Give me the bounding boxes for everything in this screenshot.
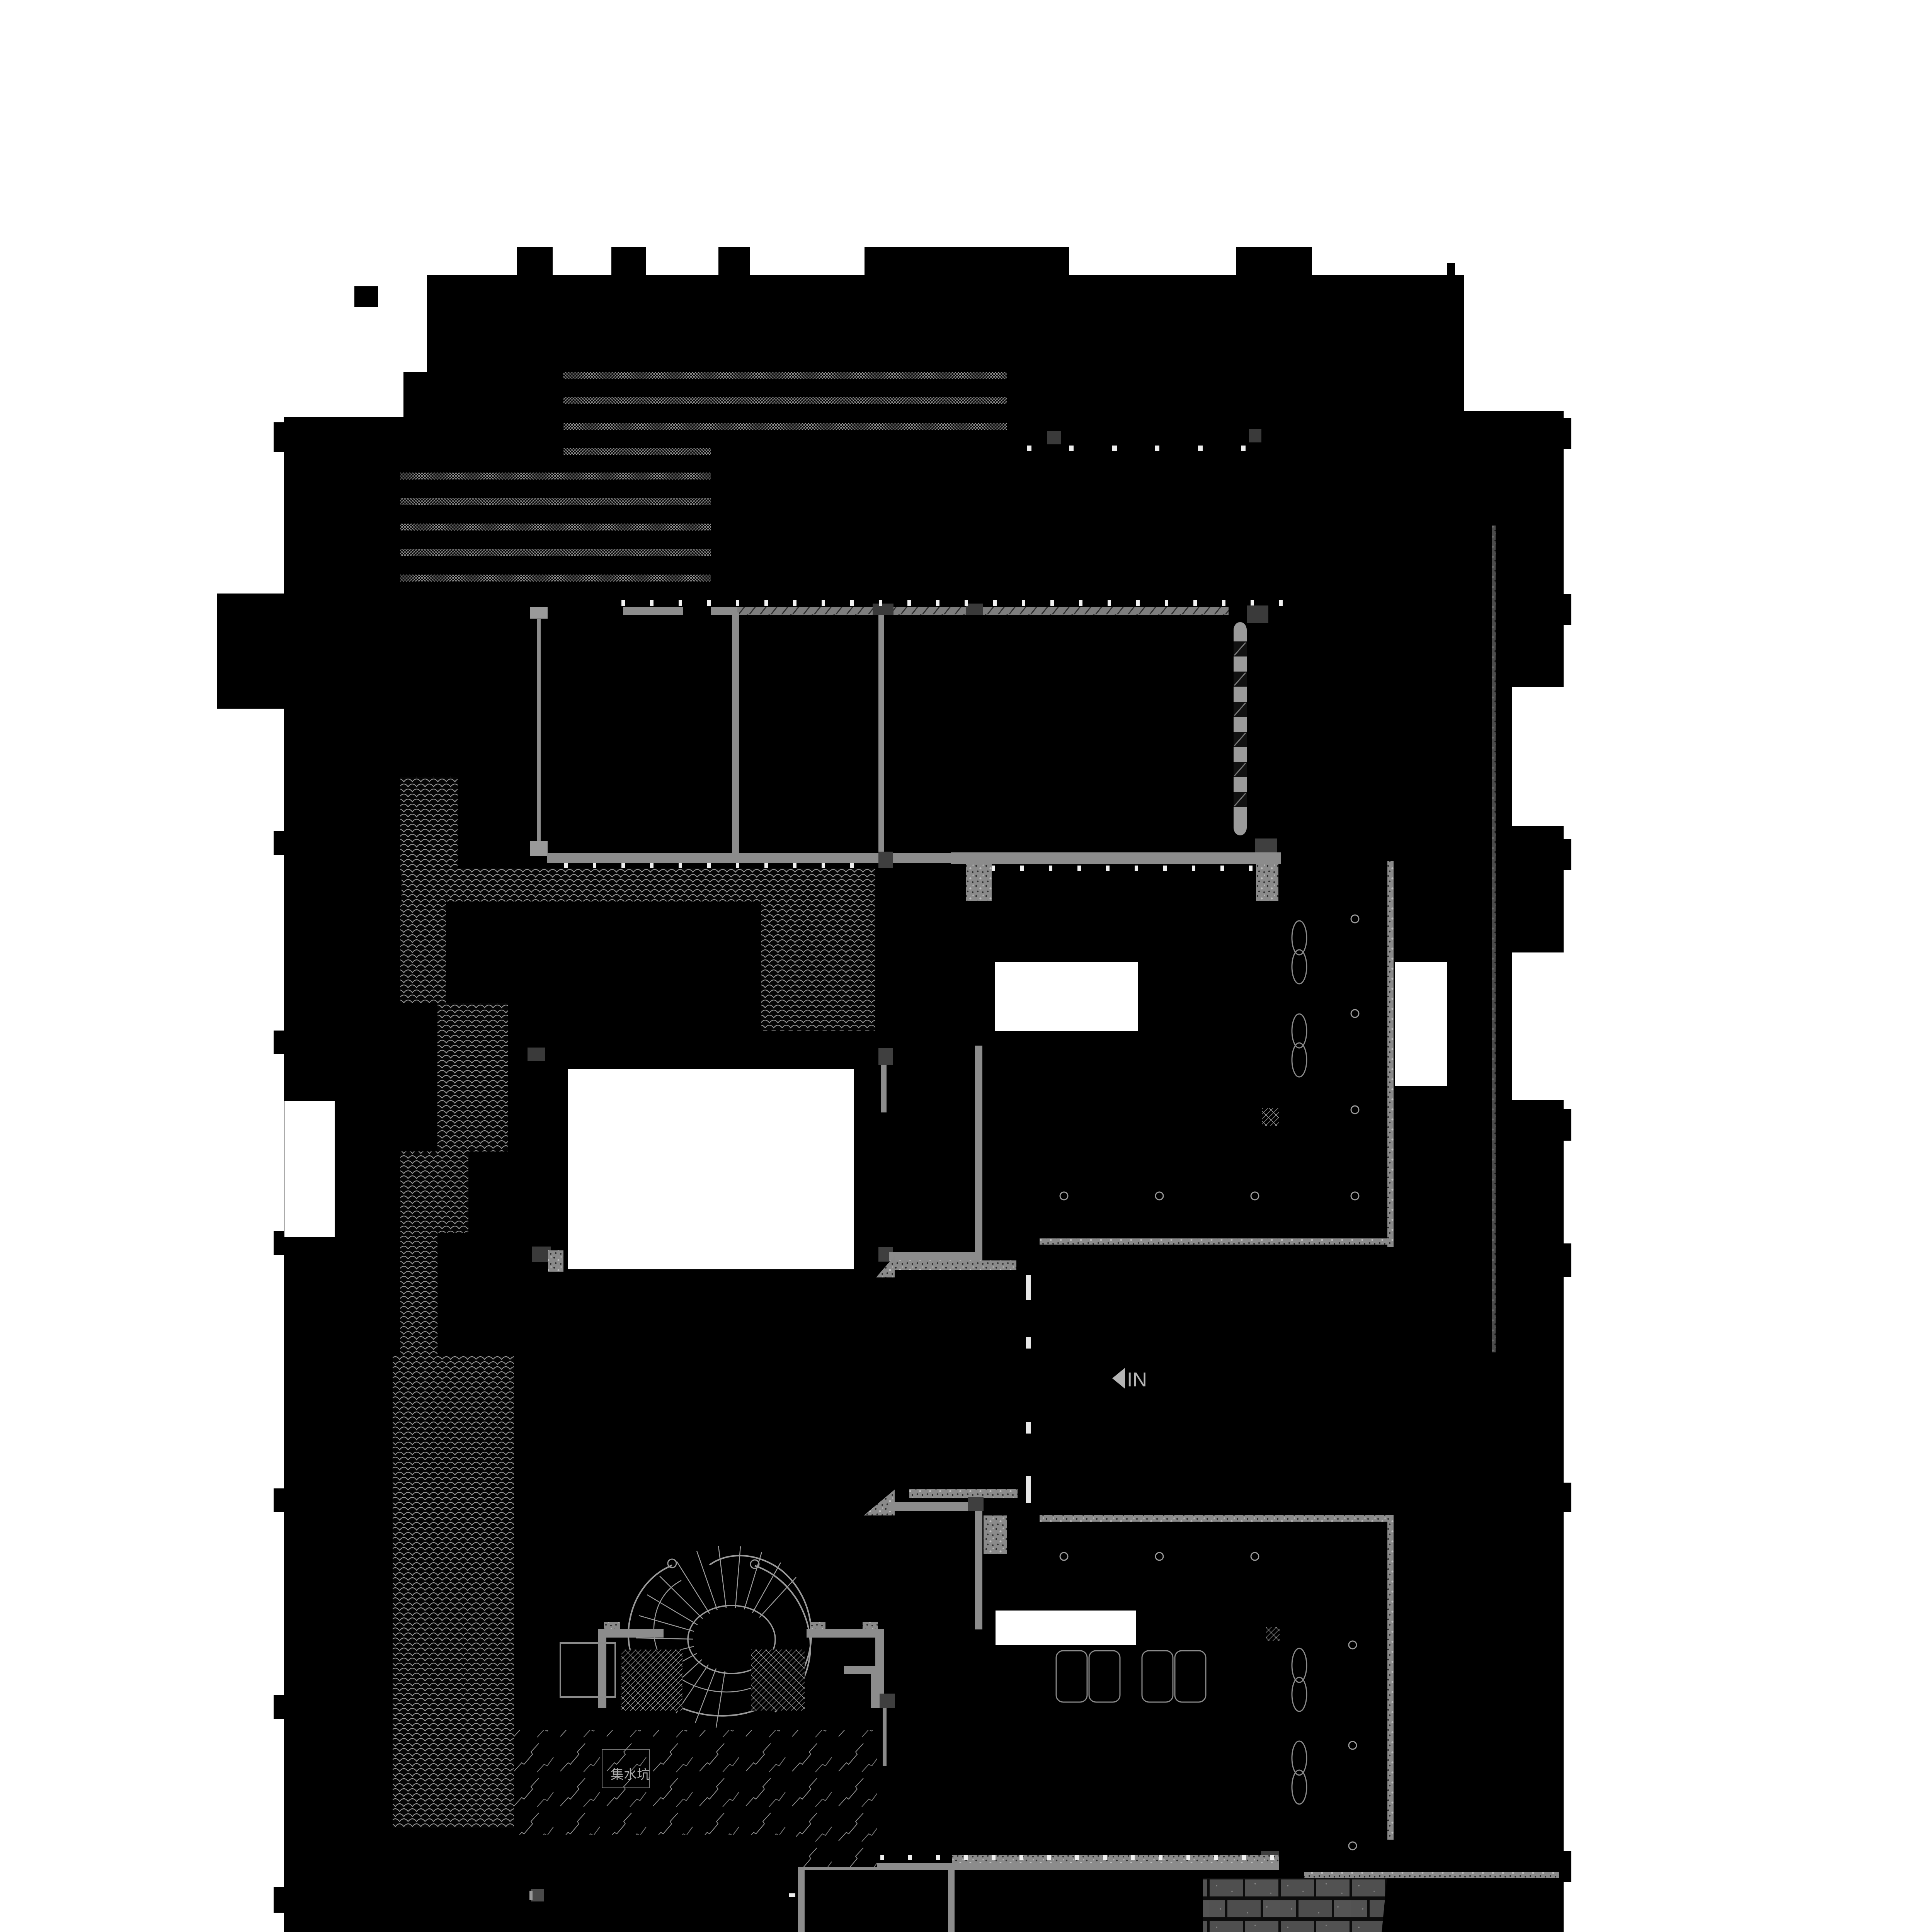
svg-text:集水坑: 集水坑 [611, 1767, 650, 1782]
svg-text:IN: IN [1127, 1369, 1147, 1391]
